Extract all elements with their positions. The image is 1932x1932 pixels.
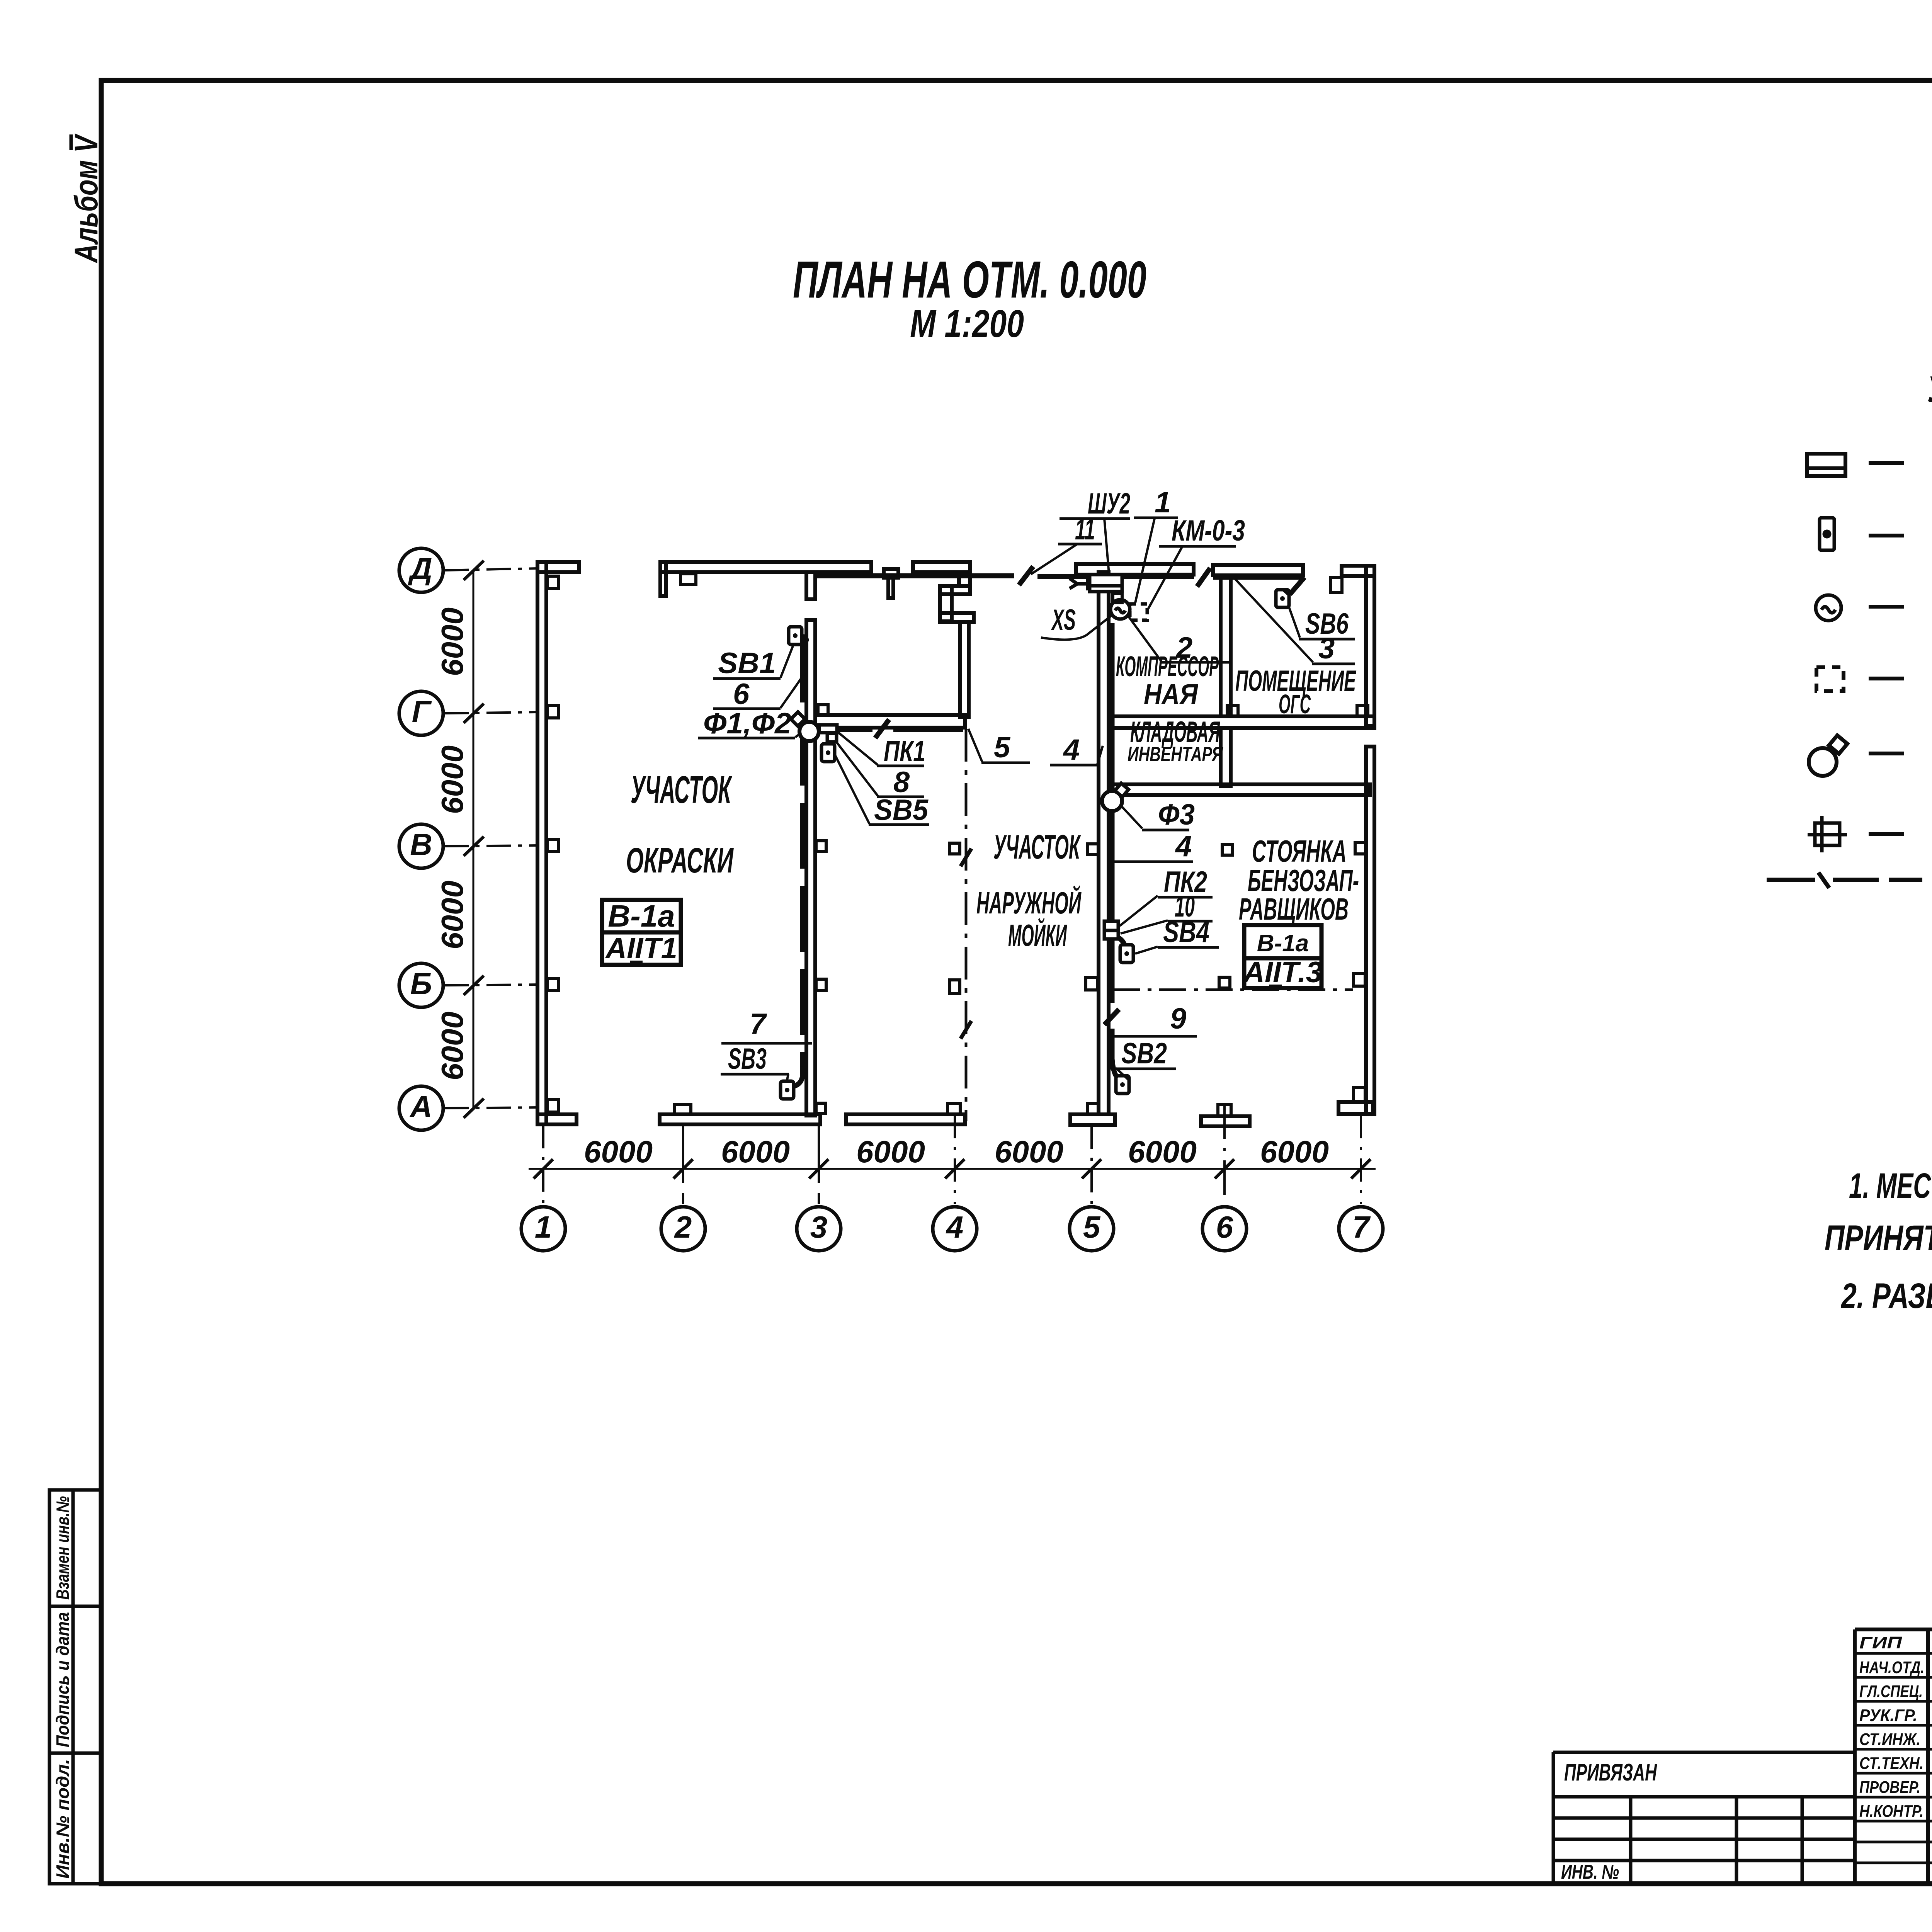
svg-text:2: 2 — [674, 1210, 692, 1244]
svg-text:РАВЩИКОВ: РАВЩИКОВ — [1239, 892, 1349, 926]
svg-text:Альбом V: Альбом V — [68, 133, 104, 263]
svg-text:Г: Г — [412, 694, 432, 729]
svg-text:НАРУЖНОЙ: НАРУЖНОЙ — [976, 885, 1082, 920]
svg-text:4: 4 — [1175, 830, 1192, 863]
svg-text:В: В — [410, 827, 432, 862]
svg-text:Н.КОНТР.: Н.КОНТР. — [1859, 1802, 1923, 1821]
svg-text:6: 6 — [1216, 1210, 1233, 1244]
svg-text:ПЛАН НА ОТМ. 0.000: ПЛАН НА ОТМ. 0.000 — [793, 250, 1146, 309]
svg-text:ИНВЕНТАРЯ: ИНВЕНТАРЯ — [1128, 743, 1223, 766]
svg-text:СТ.ИНЖ.: СТ.ИНЖ. — [1859, 1730, 1920, 1749]
svg-text:ИНВ. №: ИНВ. № — [1561, 1861, 1619, 1883]
svg-text:В-1а: В-1а — [1257, 930, 1309, 957]
svg-text:6: 6 — [733, 678, 750, 711]
svg-text:6000: 6000 — [584, 1134, 653, 1169]
svg-text:НАЧ.ОТД.: НАЧ.ОТД. — [1859, 1658, 1924, 1677]
svg-text:6000: 6000 — [435, 881, 469, 949]
svg-text:3: 3 — [810, 1210, 828, 1244]
svg-text:5: 5 — [1083, 1210, 1101, 1244]
svg-text:6000: 6000 — [995, 1134, 1063, 1169]
svg-text:ОКРАСКИ: ОКРАСКИ — [626, 841, 734, 880]
svg-text:СТ.ТЕХН.: СТ.ТЕХН. — [1859, 1754, 1923, 1773]
svg-text:6000: 6000 — [721, 1134, 790, 1169]
svg-text:6000: 6000 — [856, 1134, 925, 1169]
svg-text:УСЛОВНЫЕ ОБОЗНАЧЕНИЯ:: УСЛОВНЫЕ ОБОЗНАЧЕНИЯ: — [1927, 369, 1932, 410]
svg-text:ПРОВЕР.: ПРОВЕР. — [1859, 1778, 1920, 1797]
svg-text:1. МЕСТО УСТАНОВКИ ПУСКАТ: 1. МЕСТО УСТАНОВКИ ПУСКАТЕЛЯ КМ-0-3 — [1849, 1166, 1932, 1206]
svg-text:Взамен инв.№: Взамен инв.№ — [53, 1496, 73, 1600]
svg-text:РУК.ГР.: РУК.ГР. — [1859, 1706, 1917, 1725]
svg-text:УЧАСТОК: УЧАСТОК — [631, 768, 733, 811]
svg-text:SB5: SB5 — [874, 794, 929, 827]
svg-text:6000: 6000 — [435, 745, 469, 814]
svg-text:SB4: SB4 — [1163, 916, 1209, 949]
svg-text:SB2: SB2 — [1121, 1037, 1167, 1070]
svg-text:5: 5 — [994, 731, 1011, 764]
svg-text:3: 3 — [1318, 632, 1335, 665]
svg-text:А: А — [409, 1089, 432, 1124]
svg-text:М 1:200: М 1:200 — [910, 302, 1024, 345]
svg-text:9: 9 — [1170, 1002, 1186, 1035]
svg-text:7: 7 — [1352, 1210, 1371, 1244]
svg-text:ГЛ.СПЕЦ.: ГЛ.СПЕЦ. — [1859, 1682, 1923, 1701]
svg-text:11: 11 — [1075, 513, 1095, 546]
svg-text:АIIТ1: АIIТ1 — [605, 932, 677, 965]
svg-text:4: 4 — [946, 1210, 964, 1244]
svg-text:АIIТ.3: АIIТ.3 — [1243, 956, 1322, 989]
svg-text:ГИП: ГИП — [1859, 1633, 1903, 1652]
svg-text:6000: 6000 — [435, 607, 469, 676]
svg-text:Инв.№ подл.: Инв.№ подл. — [53, 1759, 73, 1879]
svg-text:КОМПРЕССОР: КОМПРЕССОР — [1116, 650, 1219, 682]
svg-text:1: 1 — [535, 1210, 552, 1244]
svg-text:МОЙКИ: МОЙКИ — [1008, 918, 1067, 952]
svg-text:SB1: SB1 — [718, 647, 776, 680]
svg-text:6000: 6000 — [1128, 1134, 1197, 1169]
svg-text:SB3: SB3 — [728, 1043, 767, 1075]
svg-text:ОГС: ОГС — [1279, 689, 1311, 719]
svg-text:УЧАСТОК: УЧАСТОК — [993, 828, 1081, 866]
svg-text:ПК1: ПК1 — [884, 735, 925, 768]
svg-text:Б: Б — [410, 966, 432, 1001]
svg-text:В-1а: В-1а — [608, 899, 675, 933]
svg-text:Ф3: Ф3 — [1158, 798, 1195, 831]
svg-text:НАЯ: НАЯ — [1144, 678, 1199, 710]
svg-text:КМ-0-3: КМ-0-3 — [1172, 514, 1245, 547]
svg-text:2. РАЗВОДКУ КАБЕЛЯ „11”- СМ: 2. РАЗВОДКУ КАБЕЛЯ „11”- СМ. ЧЕРТ. МАРКИ… — [1840, 1276, 1932, 1316]
svg-text:XS: XS — [1051, 604, 1076, 636]
svg-text:7: 7 — [750, 1008, 767, 1041]
svg-text:ПРИВЯЗАН: ПРИВЯЗАН — [1564, 1759, 1657, 1786]
svg-text:6000: 6000 — [435, 1012, 469, 1080]
svg-text:Д: Д — [408, 551, 432, 586]
svg-text:4: 4 — [1063, 733, 1080, 766]
svg-text:Ф1,Ф2: Ф1,Ф2 — [703, 707, 791, 740]
svg-text:Подпись и дата: Подпись и дата — [53, 1612, 73, 1747]
svg-text:6000: 6000 — [1260, 1134, 1329, 1169]
svg-text:1: 1 — [1155, 486, 1171, 519]
svg-text:ПРИНЯТО ПО ЧЕРТ. МАРКИ Э: ПРИНЯТО ПО ЧЕРТ. МАРКИ ЭМ. — [1825, 1218, 1932, 1258]
